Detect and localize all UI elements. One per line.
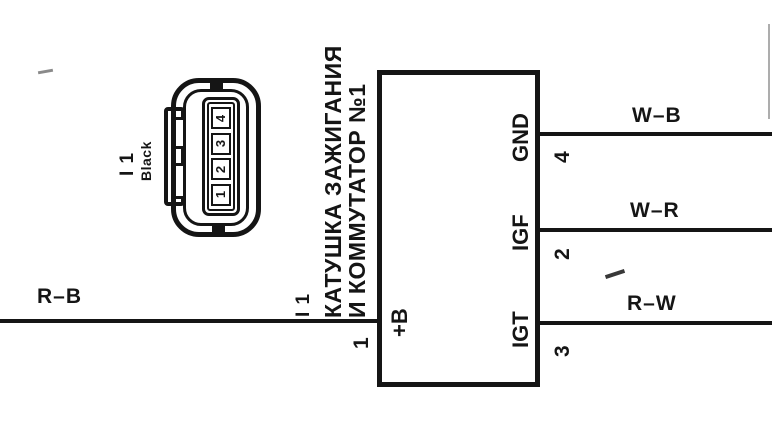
wire-color-label-wb: W–B bbox=[632, 105, 682, 126]
wire-color-label-rw: R–W bbox=[627, 293, 677, 314]
pin-number-2: 2 bbox=[552, 248, 573, 260]
scan-artifact-edge-line bbox=[768, 24, 770, 119]
pin-number-3: 3 bbox=[552, 345, 573, 357]
connector-id-label: I 1 bbox=[118, 152, 137, 176]
connector-pin-cell: 2 bbox=[211, 158, 231, 180]
wiring-diagram: 4 3 2 1 I 1 Black КАТУШКА ЗАЖИГАНИЯ И КО… bbox=[0, 0, 772, 444]
scan-artifact-tick bbox=[605, 269, 625, 279]
wire-plus-b bbox=[0, 319, 379, 323]
connector-pin-cell: 3 bbox=[211, 133, 231, 155]
component-name: КАТУШКА ЗАЖИГАНИЯ И КОММУТАТОР №1 bbox=[321, 45, 369, 318]
terminal-label-gnd: GND bbox=[510, 113, 532, 162]
connector-pin-cell: 4 bbox=[211, 107, 231, 129]
component-connector-ref: I 1 bbox=[294, 293, 313, 317]
connector-pin-number: 2 bbox=[214, 166, 227, 173]
connector-color-label: Black bbox=[139, 141, 153, 181]
component-name-line2: И КОММУТАТОР №1 bbox=[345, 45, 369, 318]
connector-pin-cell: 1 bbox=[211, 184, 231, 206]
wire-color-label-wr: W–R bbox=[630, 200, 680, 221]
connector-pin-number: 1 bbox=[214, 191, 227, 198]
pin-number-4: 4 bbox=[552, 151, 573, 163]
terminal-label-plus-b: +B bbox=[389, 308, 411, 337]
terminal-label-igt: IGT bbox=[510, 311, 532, 348]
connector-key-notch-bottom bbox=[212, 226, 225, 236]
connector-pin-number: 4 bbox=[214, 115, 227, 122]
wire-color-label-rb: R–B bbox=[37, 286, 82, 307]
pin-number-1: 1 bbox=[351, 337, 372, 349]
connector-key-notch-top bbox=[210, 79, 223, 89]
wire-gnd bbox=[538, 132, 772, 136]
terminal-label-igf: IGF bbox=[510, 214, 532, 251]
scan-artifact-dash bbox=[38, 69, 53, 75]
connector-pin-number: 3 bbox=[214, 140, 227, 147]
wire-igt bbox=[538, 321, 772, 325]
component-name-line1: КАТУШКА ЗАЖИГАНИЯ bbox=[321, 45, 345, 318]
wire-igf bbox=[538, 228, 772, 232]
connector-pin-row: 4 3 2 1 bbox=[207, 102, 235, 211]
